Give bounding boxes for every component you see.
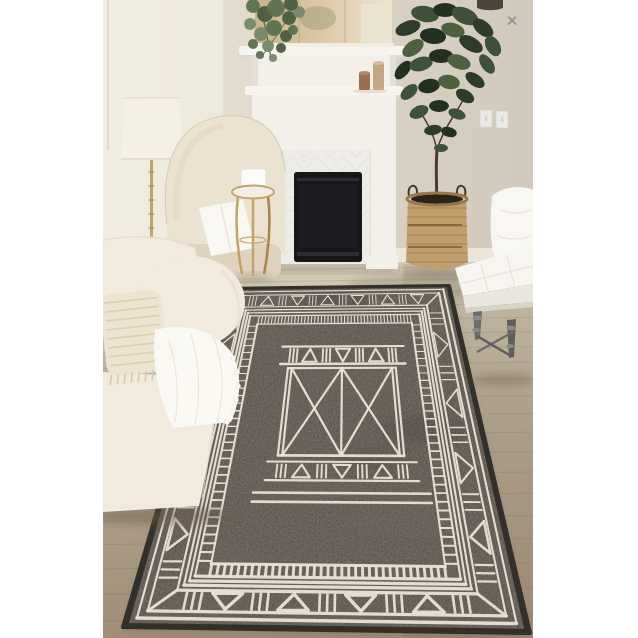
image-viewer: ✕ [0,0,638,638]
woven-basket-planter [402,186,472,278]
close-icon[interactable]: ✕ [501,10,523,32]
room-scene [103,0,533,638]
product-photo: ✕ [103,0,533,638]
